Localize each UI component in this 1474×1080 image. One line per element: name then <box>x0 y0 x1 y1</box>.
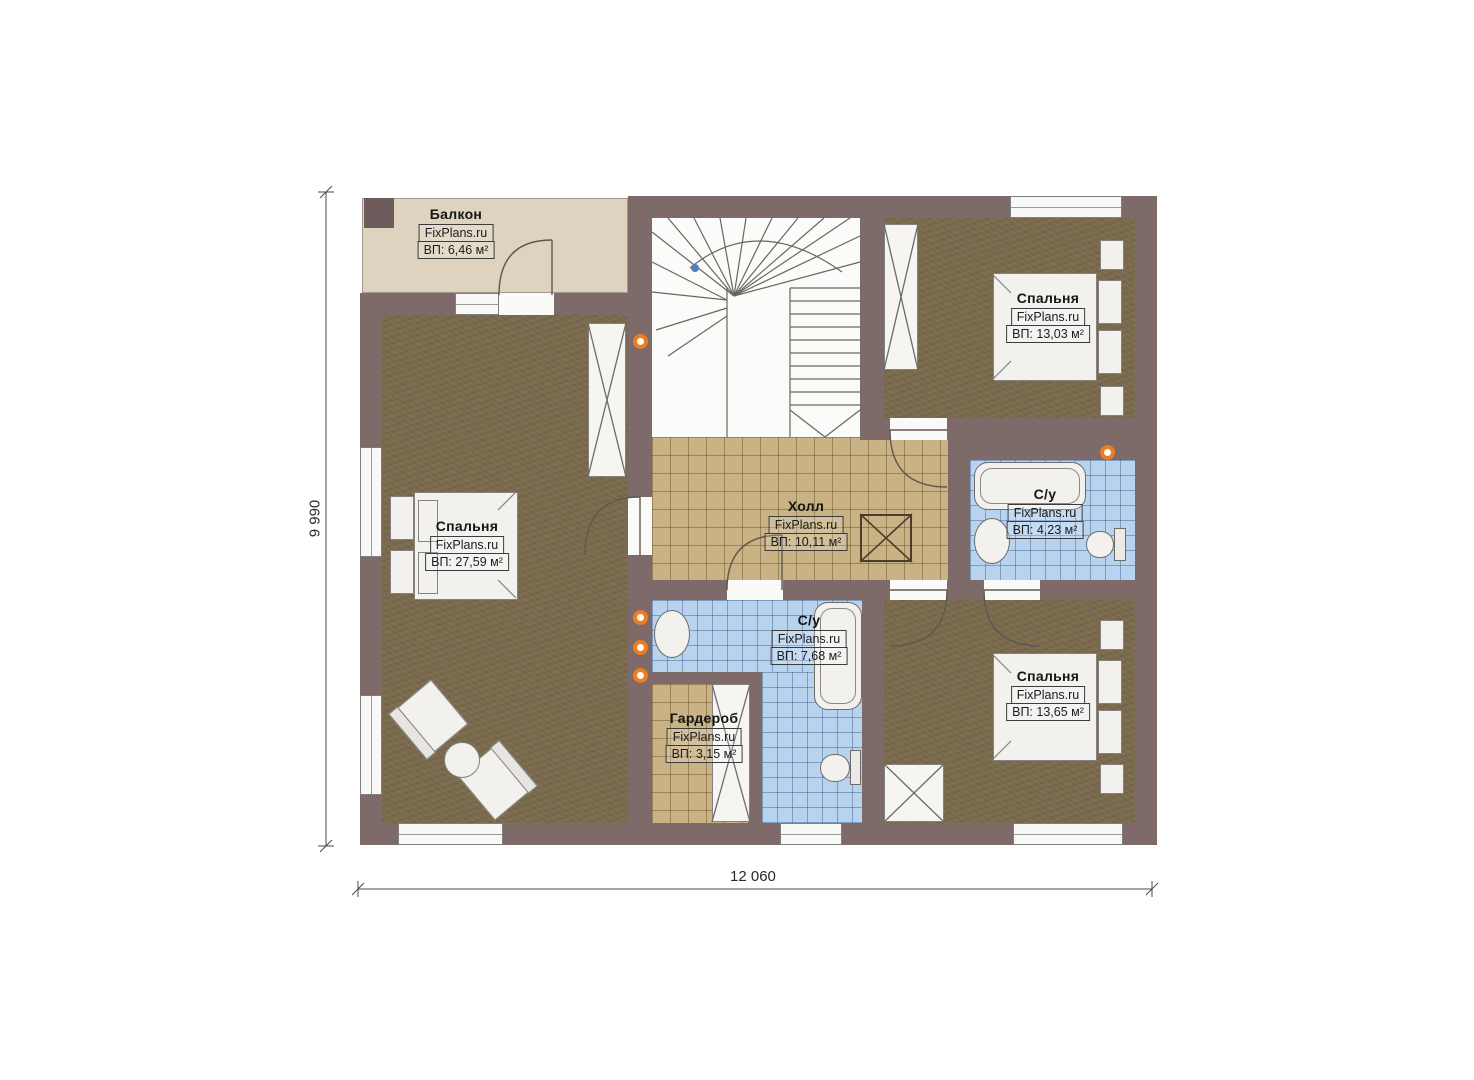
room-label-bathroom-right: С/у FixPlans.ru ВП: 4,23 м² <box>1007 486 1084 539</box>
room-label-balcony: Балкон FixPlans.ru ВП: 6,46 м² <box>418 206 495 259</box>
room-area: ВП: 13,65 м² <box>1006 703 1090 721</box>
toilet-tank <box>850 750 861 785</box>
window-bottom-bedroom-left <box>398 823 503 845</box>
wall-stair-right <box>860 218 884 440</box>
window-bottom-bedroom-right <box>1013 823 1123 845</box>
room-label-bedroom-left: Спальня FixPlans.ru ВП: 27,59 м² <box>425 518 509 571</box>
nightstand <box>1100 240 1124 270</box>
toilet-tank <box>1114 528 1126 561</box>
radiator-icon <box>633 640 648 655</box>
room-name: Спальня <box>1017 290 1080 306</box>
watermark: FixPlans.ru <box>1008 504 1083 522</box>
room-label-hall: Холл FixPlans.ru ВП: 10,11 м² <box>765 498 848 551</box>
dimension-height-label: 9 990 <box>306 500 323 538</box>
watermark: FixPlans.ru <box>419 224 494 242</box>
room-name: Спальня <box>436 518 499 534</box>
balcony-floor <box>362 198 628 293</box>
window-balcony-wall <box>455 293 499 315</box>
pillow <box>1098 660 1122 704</box>
window-left-1 <box>360 447 382 557</box>
wall-wardrobe-top <box>628 672 762 684</box>
door-opening-bathroom-right <box>984 580 1040 600</box>
nightstand <box>1100 620 1124 650</box>
radiator-icon <box>633 610 648 625</box>
room-label-bedroom-top-right: Спальня FixPlans.ru ВП: 13,03 м² <box>1006 290 1090 343</box>
wall-bathroom-center-right <box>862 580 884 823</box>
window-bottom-bathroom <box>780 823 842 845</box>
window-left-2 <box>360 695 382 795</box>
watermark: FixPlans.ru <box>1011 308 1086 326</box>
door-opening-bedroom-left <box>628 497 652 555</box>
nightstand <box>390 550 414 594</box>
pillow <box>1098 280 1122 324</box>
room-label-bathroom-center: С/у FixPlans.ru ВП: 7,68 м² <box>771 612 848 665</box>
wardrobe-cabinet <box>884 224 918 370</box>
wall-right <box>1135 196 1157 845</box>
watermark: FixPlans.ru <box>430 536 505 554</box>
door-opening-balcony <box>499 293 554 315</box>
radiator-icon <box>633 334 648 349</box>
wardrobe-cabinet <box>884 764 944 822</box>
wall-wardrobe-right <box>748 672 762 823</box>
nightstand <box>390 496 414 540</box>
room-area: ВП: 27,59 м² <box>425 553 509 571</box>
watermark: FixPlans.ru <box>769 516 844 534</box>
watermark: FixPlans.ru <box>772 630 847 648</box>
sink-center <box>654 610 690 658</box>
room-name: Холл <box>788 498 824 514</box>
room-label-bedroom-bottom-right: Спальня FixPlans.ru ВП: 13,65 м² <box>1006 668 1090 721</box>
balcony-pillar <box>364 198 394 228</box>
door-opening-bedroom-top-right <box>890 418 947 440</box>
toilet-right <box>1086 531 1114 558</box>
watermark: FixPlans.ru <box>667 728 742 746</box>
room-area: ВП: 10,11 м² <box>765 533 848 551</box>
nightstand <box>1100 386 1124 416</box>
dimension-width-label: 12 060 <box>730 868 776 885</box>
pillow <box>1098 330 1122 374</box>
room-name: Спальня <box>1017 668 1080 684</box>
room-area: ВП: 3,15 м² <box>666 745 743 763</box>
radiator-icon <box>1100 445 1115 460</box>
window-top-bedroom-right <box>1010 196 1122 218</box>
watermark: FixPlans.ru <box>1011 686 1086 704</box>
room-area: ВП: 4,23 м² <box>1007 521 1084 539</box>
room-name: С/у <box>798 612 821 628</box>
room-name: Гардероб <box>670 710 739 726</box>
room-area: ВП: 6,46 м² <box>418 241 495 259</box>
wall-hall-bathroom-right <box>948 440 970 600</box>
room-name: С/у <box>1034 486 1057 502</box>
stairwell-floor <box>652 218 860 437</box>
room-name: Балкон <box>430 206 482 222</box>
room-area: ВП: 13,03 м² <box>1006 325 1090 343</box>
wardrobe-cabinet <box>588 323 626 477</box>
floor-plan: Балкон FixPlans.ru ВП: 6,46 м² Спальня F… <box>0 0 1474 1080</box>
radiator-icon <box>633 668 648 683</box>
round-table <box>444 742 480 778</box>
room-area: ВП: 7,68 м² <box>771 647 848 665</box>
door-opening-bathroom-center <box>727 580 783 600</box>
sink-right <box>974 518 1010 564</box>
toilet-center <box>820 754 850 782</box>
room-label-wardrobe: Гардероб FixPlans.ru ВП: 3,15 м² <box>666 710 743 763</box>
pillow <box>1098 710 1122 754</box>
door-opening-bedroom-bottom-right <box>890 580 947 600</box>
hall-storage <box>860 514 912 562</box>
nightstand <box>1100 764 1124 794</box>
